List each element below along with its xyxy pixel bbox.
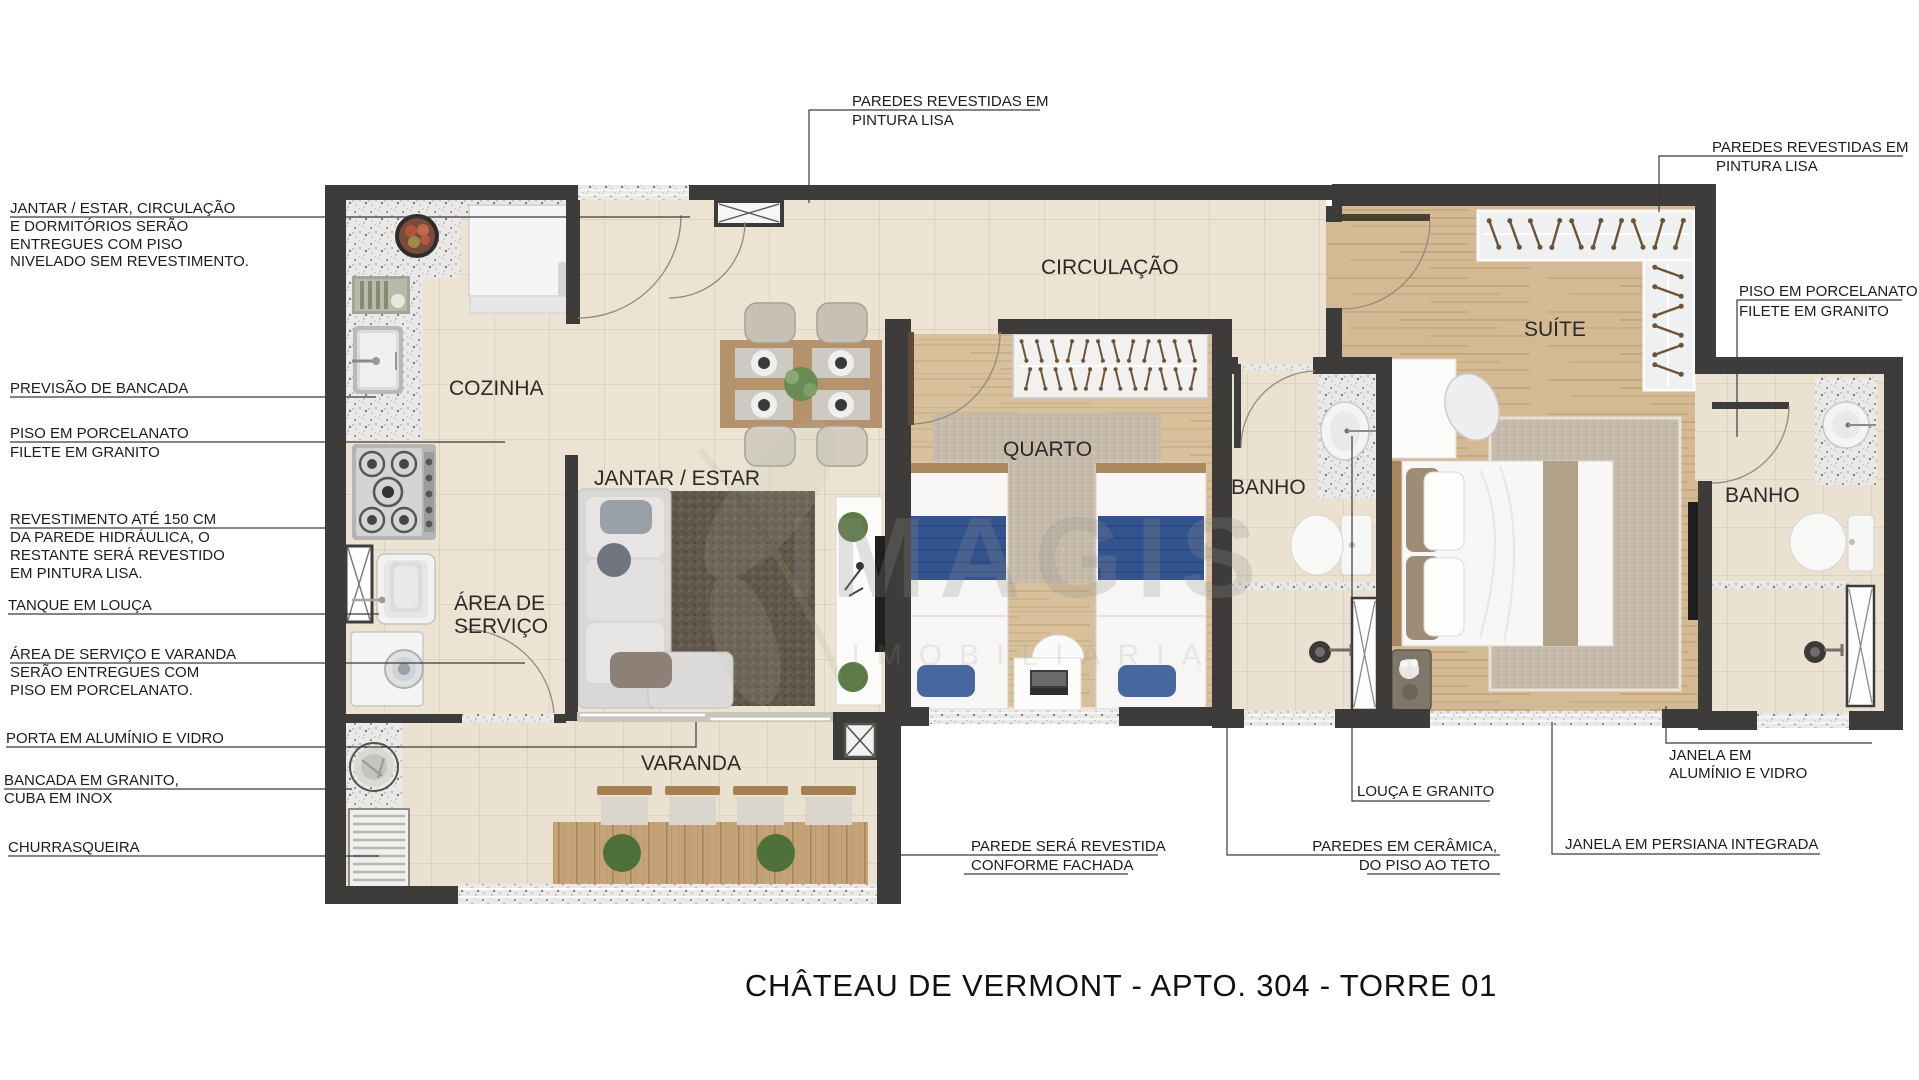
svg-text:COZINHA: COZINHA xyxy=(449,377,544,400)
svg-text:CHURRASQUEIRA: CHURRASQUEIRA xyxy=(8,839,140,856)
svg-text:BANHO: BANHO xyxy=(1231,476,1306,499)
svg-text:CUBA EM INOX: CUBA EM INOX xyxy=(4,790,112,807)
svg-text:REVESTIMENTO ATÉ 150 CM: REVESTIMENTO ATÉ 150 CM xyxy=(10,511,216,528)
svg-text:ÁREA DE: ÁREA DE xyxy=(454,592,545,615)
svg-text:SERVIÇO: SERVIÇO xyxy=(454,615,548,638)
svg-text:DA PAREDE HIDRÁULICA, O: DA PAREDE HIDRÁULICA, O xyxy=(10,529,210,546)
svg-text:PAREDES REVESTIDAS EM: PAREDES REVESTIDAS EM xyxy=(1712,139,1908,156)
svg-text:PREVISÃO DE BANCADA: PREVISÃO DE BANCADA xyxy=(10,380,188,397)
svg-text:IMOBILIÁRIA: IMOBILIÁRIA xyxy=(851,639,1218,672)
svg-text:IMAGIS: IMAGIS xyxy=(786,495,1269,622)
svg-text:PORTA EM ALUMÍNIO E VIDRO: PORTA EM ALUMÍNIO E VIDRO xyxy=(6,730,224,747)
svg-text:FILETE EM GRANITO: FILETE EM GRANITO xyxy=(10,444,160,461)
svg-text:VARANDA: VARANDA xyxy=(641,752,741,775)
svg-text:PISO EM PORCELANATO: PISO EM PORCELANATO xyxy=(10,425,189,442)
svg-text:JANELA EM PERSIANA INTEGRADA: JANELA EM PERSIANA INTEGRADA xyxy=(1565,836,1818,853)
svg-text:PINTURA LISA: PINTURA LISA xyxy=(852,112,954,129)
svg-text:NIVELADO SEM REVESTIMENTO.: NIVELADO SEM REVESTIMENTO. xyxy=(10,253,249,270)
svg-text:CIRCULAÇÃO: CIRCULAÇÃO xyxy=(1041,255,1179,279)
svg-text:PAREDES EM CERÂMICA,: PAREDES EM CERÂMICA, xyxy=(1312,838,1497,855)
svg-text:PISO EM PORCELANATO.: PISO EM PORCELANATO. xyxy=(10,682,193,699)
svg-text:TANQUE EM LOUÇA: TANQUE EM LOUÇA xyxy=(8,597,152,614)
svg-text:SUÍTE: SUÍTE xyxy=(1524,318,1586,341)
svg-text:FILETE EM GRANITO: FILETE EM GRANITO xyxy=(1739,303,1889,320)
svg-text:QUARTO: QUARTO xyxy=(1003,438,1092,461)
svg-text:JANELA EM: JANELA EM xyxy=(1669,747,1752,764)
svg-text:PAREDE SERÁ REVESTIDA: PAREDE SERÁ REVESTIDA xyxy=(971,838,1166,855)
svg-text:E DORMITÓRIOS SERÃO: E DORMITÓRIOS SERÃO xyxy=(10,218,188,235)
svg-text:JANTAR / ESTAR: JANTAR / ESTAR xyxy=(594,467,760,490)
svg-text:BANCADA EM GRANITO,: BANCADA EM GRANITO, xyxy=(4,772,179,789)
svg-text:CHÂTEAU DE VERMONT - APTO. 304: CHÂTEAU DE VERMONT - APTO. 304 - TORRE 0… xyxy=(745,968,1497,1003)
svg-text:EM PINTURA LISA.: EM PINTURA LISA. xyxy=(10,565,143,582)
svg-text:ENTREGUES COM PISO: ENTREGUES COM PISO xyxy=(10,236,183,253)
svg-text:PAREDES REVESTIDAS EM: PAREDES REVESTIDAS EM xyxy=(852,93,1048,110)
svg-text:PINTURA LISA: PINTURA LISA xyxy=(1716,158,1818,175)
svg-text:PISO EM PORCELANATO: PISO EM PORCELANATO xyxy=(1739,283,1918,300)
svg-text:JANTAR / ESTAR, CIRCULAÇÃO: JANTAR / ESTAR, CIRCULAÇÃO xyxy=(10,200,235,217)
svg-text:DO PISO AO TETO: DO PISO AO TETO xyxy=(1359,857,1490,874)
svg-text:ÁREA DE SERVIÇO E VARANDA: ÁREA DE SERVIÇO E VARANDA xyxy=(10,646,236,663)
svg-text:CONFORME FACHADA: CONFORME FACHADA xyxy=(971,857,1134,874)
svg-text:BANHO: BANHO xyxy=(1725,484,1800,507)
svg-text:ALUMÍNIO E VIDRO: ALUMÍNIO E VIDRO xyxy=(1669,765,1807,782)
svg-text:LOUÇA E GRANITO: LOUÇA E GRANITO xyxy=(1357,783,1494,800)
svg-text:SERÃO ENTREGUES COM: SERÃO ENTREGUES COM xyxy=(10,664,199,681)
svg-text:RESTANTE SERÁ REVESTIDO: RESTANTE SERÁ REVESTIDO xyxy=(10,547,225,564)
